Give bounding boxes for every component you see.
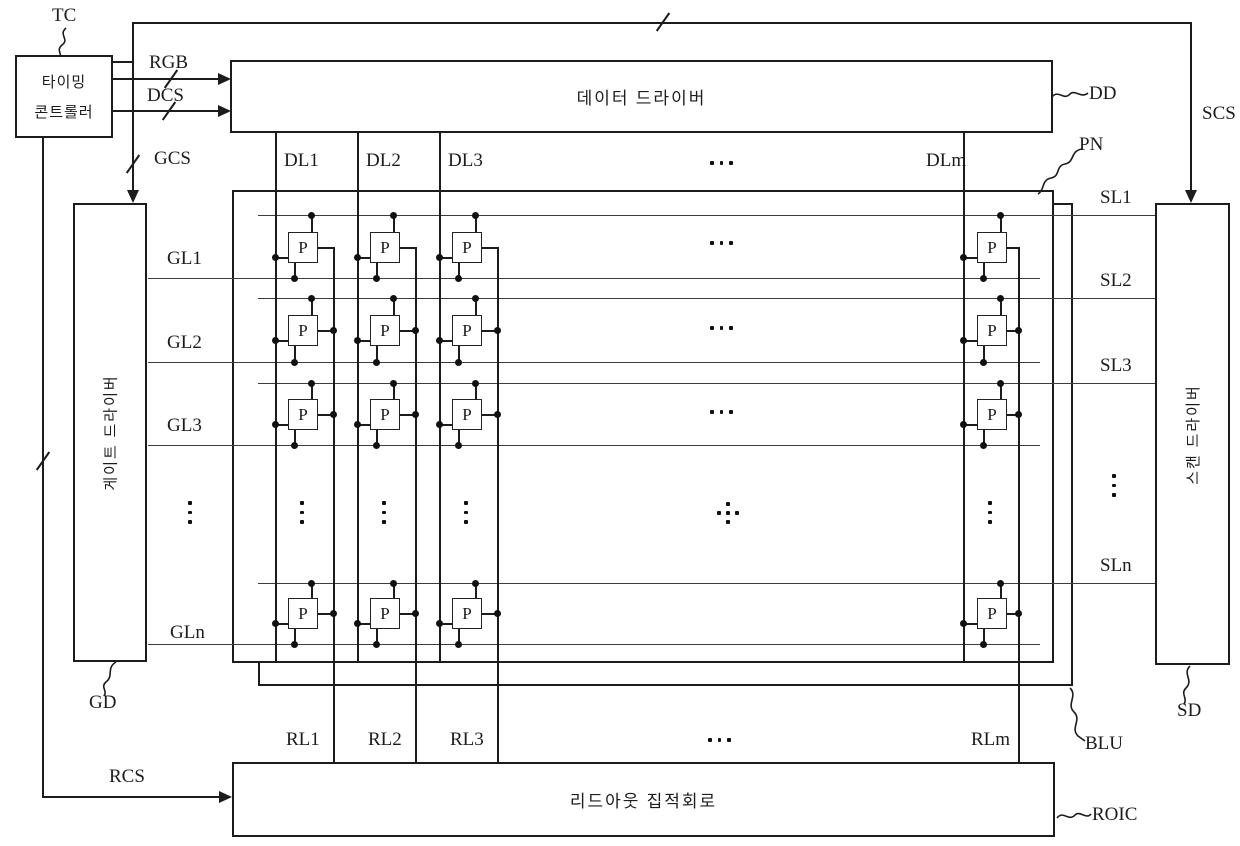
- pixel: P: [977, 315, 1007, 346]
- timing-controller-box: 타이밍 콘트롤러: [15, 55, 113, 138]
- data-line-label: DL1: [284, 150, 319, 172]
- ellipsis-dot: [300, 520, 304, 524]
- junction-dot: [308, 212, 315, 219]
- junction-dot: [330, 327, 337, 334]
- data-line: [963, 133, 965, 663]
- ellipsis-vertical: [988, 501, 992, 524]
- ellipsis-cross-dot: [726, 511, 730, 515]
- junction-dot: [390, 295, 397, 302]
- rcs-drop-line: [42, 138, 44, 798]
- ellipsis-cross-dot: [717, 511, 721, 515]
- junction-dot: [330, 411, 337, 418]
- junction-dot: [390, 580, 397, 587]
- ellipsis-dot: [464, 501, 468, 505]
- junction-dot: [291, 359, 298, 366]
- scs-arrowhead: [1185, 190, 1197, 203]
- junction-dot: [436, 337, 443, 344]
- data-line-label: DL2: [366, 150, 401, 172]
- ellipsis-dot: [382, 501, 386, 505]
- junction-dot: [354, 620, 361, 627]
- sense-line-label: SLn: [1100, 555, 1132, 577]
- blu-leader-squiggle: [1064, 687, 1092, 743]
- ellipsis-vertical: [300, 501, 304, 524]
- junction-dot: [960, 337, 967, 344]
- ellipsis-vertical: [1112, 474, 1116, 497]
- display-device-block-diagram: 타이밍 콘트롤러 데이터 드라이버 게이트 드라이버 스캔 드라이버 리드아웃 …: [0, 0, 1240, 846]
- ellipsis-dot: [710, 326, 714, 330]
- pixel: P: [452, 598, 482, 629]
- roic-ref-label: ROIC: [1092, 804, 1137, 826]
- ellipsis-dot: [1112, 493, 1116, 497]
- ellipsis-dot: [710, 241, 714, 245]
- ellipsis-dot: [382, 520, 386, 524]
- data-line-label: DL3: [448, 150, 483, 172]
- junction-dot: [494, 610, 501, 617]
- ellipsis-dot: [720, 241, 724, 245]
- junction-dot: [980, 359, 987, 366]
- data-line: [357, 133, 359, 663]
- pixel: P: [288, 315, 318, 346]
- readout-line-label: RLm: [971, 729, 1010, 751]
- junction-dot: [472, 212, 479, 219]
- rgb-line: [113, 78, 219, 80]
- scs-signal-label: SCS: [1202, 103, 1236, 125]
- ellipsis-dot: [720, 410, 724, 414]
- pixel: P: [452, 232, 482, 263]
- roic-leader-squiggle: [1056, 808, 1092, 824]
- junction-dot: [272, 620, 279, 627]
- junction-dot: [455, 359, 462, 366]
- pixel-right-arm: [482, 247, 497, 249]
- junction-dot: [308, 580, 315, 587]
- data-line: [439, 133, 441, 663]
- junction-dot: [494, 411, 501, 418]
- junction-dot: [455, 275, 462, 282]
- ellipsis-dot: [188, 520, 192, 524]
- ellipsis-dot: [188, 511, 192, 515]
- scan-driver-label: 스캔 드라이버: [1182, 384, 1203, 485]
- timing-controller-label-line2: 콘트롤러: [34, 101, 93, 122]
- pixel: P: [288, 232, 318, 263]
- junction-dot: [390, 212, 397, 219]
- pixel-right-arm: [400, 247, 415, 249]
- junction-dot: [980, 442, 987, 449]
- readout-line-label: RL2: [368, 729, 402, 751]
- pixel: P: [977, 232, 1007, 263]
- junction-dot: [472, 580, 479, 587]
- rgb-signal-label: RGB: [149, 52, 188, 74]
- ellipsis-dot: [188, 501, 192, 505]
- sense-line-label: SL3: [1100, 355, 1132, 377]
- ellipsis-dot: [718, 738, 722, 742]
- pixel-right-arm: [318, 247, 333, 249]
- gate-line: [148, 644, 1040, 645]
- pixel: P: [977, 598, 1007, 629]
- junction-dot: [960, 620, 967, 627]
- junction-dot: [1015, 411, 1022, 418]
- junction-dot: [373, 359, 380, 366]
- ellipsis-dot: [464, 511, 468, 515]
- pn-leader-squiggle: [1035, 146, 1085, 196]
- gcs-arrowhead: [127, 190, 139, 203]
- ellipsis-horizontal: [710, 161, 733, 165]
- pixel: P: [370, 399, 400, 430]
- ellipsis-dot: [729, 161, 733, 165]
- pixel: P: [977, 399, 1007, 430]
- sense-line-label: SL2: [1100, 270, 1132, 292]
- sd-leader-squiggle: [1177, 665, 1199, 705]
- junction-dot: [472, 295, 479, 302]
- ellipsis-dot: [727, 738, 731, 742]
- gate-driver-label: 게이트 드라이버: [100, 374, 121, 490]
- pixel: P: [452, 315, 482, 346]
- ellipsis-dot: [1112, 474, 1116, 478]
- readout-line: [415, 247, 417, 762]
- junction-dot: [291, 275, 298, 282]
- ellipsis-dot: [988, 520, 992, 524]
- junction-dot: [354, 421, 361, 428]
- dcs-signal-label: DCS: [147, 85, 184, 107]
- dd-leader-squiggle: [1051, 87, 1089, 103]
- ellipsis-vertical: [188, 501, 192, 524]
- junction-dot: [412, 411, 419, 418]
- junction-dot: [373, 275, 380, 282]
- pixel: P: [288, 399, 318, 430]
- gcs-signal-label: GCS: [154, 148, 191, 170]
- readout-line: [1018, 247, 1020, 762]
- readout-line-label: RL1: [286, 729, 320, 751]
- junction-dot: [272, 421, 279, 428]
- ellipsis-dot: [382, 511, 386, 515]
- junction-dot: [308, 295, 315, 302]
- readout-line: [333, 247, 335, 762]
- scan-driver-box: 스캔 드라이버: [1155, 203, 1230, 665]
- ellipsis-dot: [710, 410, 714, 414]
- ellipsis-vertical: [464, 501, 468, 524]
- junction-dot: [354, 337, 361, 344]
- ellipsis-dot: [720, 161, 724, 165]
- tc-leader-squiggle: [54, 27, 72, 57]
- ellipsis-dot: [464, 520, 468, 524]
- pixel: P: [452, 399, 482, 430]
- ellipsis-dot: [300, 511, 304, 515]
- ellipsis-cross-dot: [735, 511, 739, 515]
- ellipsis-dot: [729, 326, 733, 330]
- gate-line: [148, 278, 1040, 279]
- ellipsis-horizontal: [710, 326, 733, 330]
- gate-line-label: GL3: [167, 415, 202, 437]
- junction-dot: [997, 580, 1004, 587]
- gate-line: [148, 445, 1040, 446]
- junction-dot: [455, 641, 462, 648]
- ellipsis-horizontal: [710, 410, 733, 414]
- timing-controller-label-line1: 타이밍: [42, 71, 86, 92]
- ellipsis-cross-dot: [726, 502, 730, 506]
- junction-dot: [960, 421, 967, 428]
- ellipsis-dot: [300, 501, 304, 505]
- ellipsis-dot: [710, 161, 714, 165]
- ellipsis-cross-dot: [726, 520, 730, 524]
- readout-line-label: RL3: [450, 729, 484, 751]
- rcs-signal-label: RCS: [109, 766, 145, 788]
- junction-dot: [390, 380, 397, 387]
- ellipsis-dot: [708, 738, 712, 742]
- pixel: P: [288, 598, 318, 629]
- junction-dot: [308, 380, 315, 387]
- data-line-label: DLm: [926, 150, 966, 172]
- readout-ic-box: 리드아웃 집적회로: [232, 762, 1055, 837]
- rcs-line: [42, 796, 221, 798]
- junction-dot: [980, 641, 987, 648]
- junction-dot: [412, 610, 419, 617]
- junction-dot: [1015, 610, 1022, 617]
- junction-dot: [354, 254, 361, 261]
- pixel: P: [370, 598, 400, 629]
- junction-dot: [997, 380, 1004, 387]
- junction-dot: [272, 254, 279, 261]
- junction-dot: [455, 442, 462, 449]
- tc-connector-line: [113, 61, 133, 63]
- junction-dot: [436, 254, 443, 261]
- pixel-right-arm: [1007, 247, 1018, 249]
- junction-dot: [997, 212, 1004, 219]
- junction-dot: [373, 641, 380, 648]
- ellipsis-dot: [729, 410, 733, 414]
- junction-dot: [997, 295, 1004, 302]
- junction-dot: [291, 641, 298, 648]
- ellipsis-dot: [729, 241, 733, 245]
- ellipsis-vertical: [382, 501, 386, 524]
- sense-line-label: SL1: [1100, 187, 1132, 209]
- readout-line: [497, 247, 499, 762]
- data-driver-label: 데이터 드라이버: [577, 84, 707, 109]
- pixel: P: [370, 315, 400, 346]
- dd-ref-label: DD: [1089, 83, 1116, 105]
- pixel: P: [370, 232, 400, 263]
- gate-line: [148, 362, 1040, 363]
- ellipsis-dot: [1112, 484, 1116, 488]
- junction-dot: [436, 620, 443, 627]
- gate-driver-box: 게이트 드라이버: [73, 203, 147, 662]
- ellipsis-horizontal: [708, 738, 731, 742]
- data-driver-box: 데이터 드라이버: [230, 60, 1053, 133]
- ellipsis-dot: [988, 501, 992, 505]
- junction-dot: [272, 337, 279, 344]
- junction-dot: [436, 421, 443, 428]
- junction-dot: [412, 327, 419, 334]
- junction-dot: [980, 275, 987, 282]
- junction-dot: [472, 380, 479, 387]
- data-line: [275, 133, 277, 663]
- tc-ref-label: TC: [52, 5, 76, 27]
- readout-ic-label: 리드아웃 집적회로: [570, 787, 717, 812]
- gate-line-label: GL2: [167, 332, 202, 354]
- junction-dot: [373, 442, 380, 449]
- junction-dot: [494, 327, 501, 334]
- ellipsis-dot: [720, 326, 724, 330]
- junction-dot: [330, 610, 337, 617]
- junction-dot: [1015, 327, 1022, 334]
- gate-line-label: GL1: [167, 248, 202, 270]
- junction-dot: [291, 442, 298, 449]
- ellipsis-horizontal: [710, 241, 733, 245]
- gd-leader-squiggle: [99, 661, 121, 697]
- ellipsis-dot: [988, 511, 992, 515]
- scs-drop-line: [1190, 22, 1192, 192]
- gate-line-label: GLn: [170, 622, 205, 644]
- junction-dot: [960, 254, 967, 261]
- rcs-arrowhead: [219, 791, 232, 803]
